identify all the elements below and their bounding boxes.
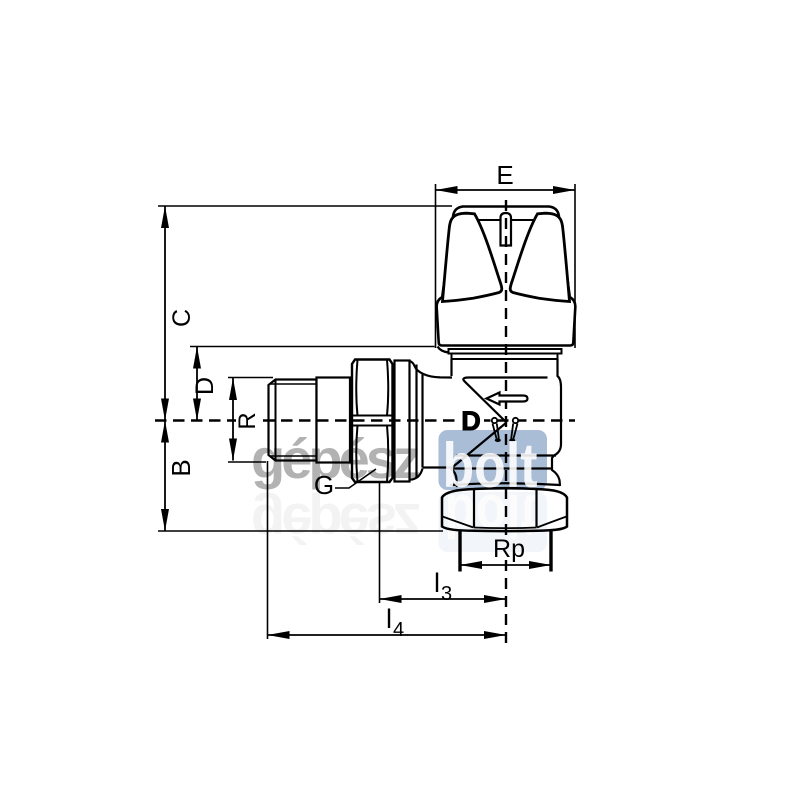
svg-text:B: B bbox=[166, 459, 196, 476]
svg-text:C: C bbox=[168, 309, 196, 327]
svg-text:bolt: bolt bbox=[445, 482, 538, 550]
svg-text:gépész: gépész bbox=[251, 492, 421, 555]
svg-text:4: 4 bbox=[393, 619, 404, 641]
svg-text:D: D bbox=[191, 377, 219, 395]
svg-text:l: l bbox=[386, 604, 392, 634]
svg-text:E: E bbox=[496, 160, 513, 190]
svg-text:l: l bbox=[434, 568, 440, 598]
svg-text:gépész: gépész bbox=[251, 427, 421, 490]
svg-text:3: 3 bbox=[441, 583, 452, 605]
